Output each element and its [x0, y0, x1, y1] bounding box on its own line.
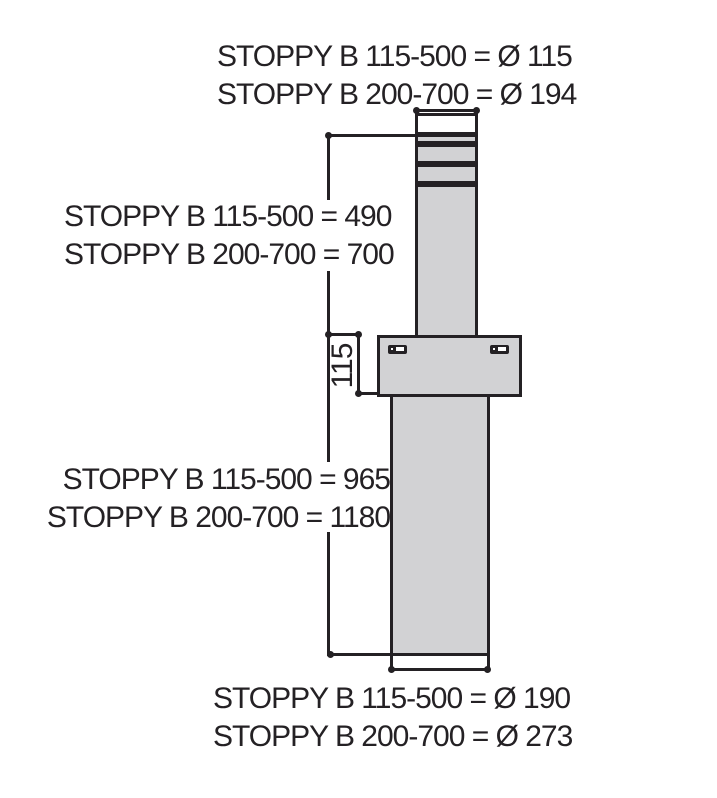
flange-height-label: 115	[328, 335, 358, 397]
bottom-dimension-line	[390, 668, 490, 671]
above-ground-line1: STOPPY B 115-500 = 490	[64, 198, 394, 236]
left-dim-segment-a	[327, 134, 330, 200]
flange-slot-left-pin	[391, 348, 393, 350]
stripe-band-1	[418, 132, 475, 137]
total-height-labels: STOPPY B 115-500 = 965 STOPPY B 200-700 …	[30, 461, 390, 537]
total-height-line1: STOPPY B 115-500 = 965	[30, 461, 390, 499]
bollard-post	[415, 113, 478, 338]
underground-diameter-line2: STOPPY B 200-700 = Ø 273	[213, 718, 572, 756]
top-diameter-line1: STOPPY B 115-500 = Ø 115	[217, 38, 576, 76]
left-dim-segment-c	[327, 532, 330, 655]
left-dim-dot-top	[325, 132, 332, 139]
flange-slot-left	[388, 345, 407, 354]
above-ground-line2: STOPPY B 200-700 = 700	[64, 236, 394, 274]
flange-slot-right-window	[498, 347, 506, 351]
top-diameter-line2: STOPPY B 200-700 = Ø 194	[217, 76, 576, 114]
underground-diameter-labels: STOPPY B 115-500 = Ø 190 STOPPY B 200-70…	[213, 680, 572, 756]
flange-slot-right-pin	[493, 348, 495, 350]
total-height-bottom-tick	[327, 653, 390, 656]
bottom-dimension-dot-left	[388, 666, 395, 673]
flange-dim-bottom-tick	[357, 392, 377, 395]
above-ground-top-tick	[327, 134, 415, 137]
underground-casing	[390, 395, 490, 656]
stripe-band-2	[418, 141, 475, 147]
top-dimension-line	[415, 109, 478, 112]
top-diameter-labels: STOPPY B 115-500 = Ø 115 STOPPY B 200-70…	[217, 38, 576, 114]
dimension-diagram: STOPPY B 115-500 = Ø 115 STOPPY B 200-70…	[0, 0, 717, 798]
underground-diameter-line1: STOPPY B 115-500 = Ø 190	[213, 680, 572, 718]
above-ground-height-labels: STOPPY B 115-500 = 490 STOPPY B 200-700 …	[64, 198, 394, 274]
flange-slot-right	[490, 345, 509, 354]
stripe-band-3	[418, 161, 475, 167]
flange-slot-left-window	[396, 347, 404, 351]
total-height-line2: STOPPY B 200-700 = 1180	[30, 499, 390, 537]
stripe-band-4	[418, 181, 475, 187]
bollard-cap	[418, 116, 475, 132]
bottom-dimension-dot-right	[484, 666, 491, 673]
